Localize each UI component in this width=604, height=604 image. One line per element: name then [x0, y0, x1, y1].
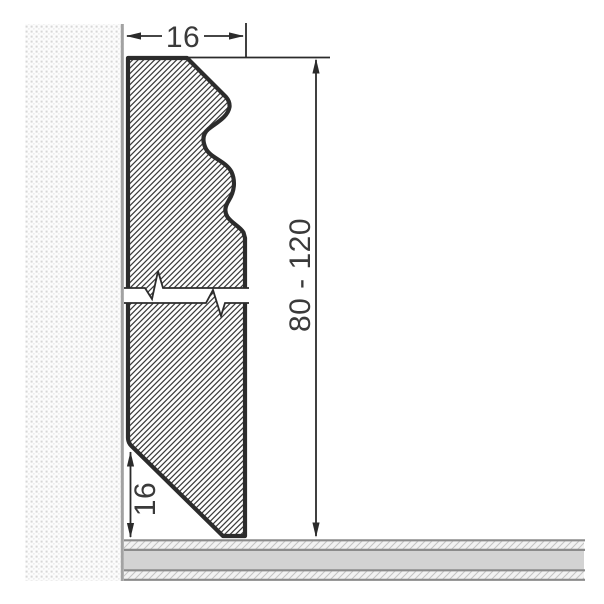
wall	[25, 24, 124, 581]
width-dim-arrow-left-icon	[126, 32, 141, 39]
height-dim-arrow-top-icon	[312, 59, 319, 74]
floor	[124, 540, 585, 580]
skirting-upper-section	[128, 58, 245, 299]
width-dimension-label: 16	[166, 21, 200, 54]
height-dim-arrow-bottom-icon	[312, 523, 319, 538]
width-dim-arrow-right-icon	[229, 32, 244, 39]
floor-bottom-screed	[124, 571, 584, 580]
drawing-canvas: 16 80 - 120 16	[0, 0, 604, 604]
floor-core	[124, 551, 584, 570]
wall-surface	[25, 24, 124, 581]
width-dimension: 16	[126, 20, 246, 58]
height-dimension-label: 80 - 120	[284, 218, 317, 332]
floor-top-screed	[124, 541, 584, 550]
bevel-dim-arrow-top-icon	[127, 452, 134, 467]
wall-edge-line	[121, 24, 124, 581]
bevel-dim-arrow-bottom-icon	[127, 523, 134, 538]
skirting-cross-section-drawing: 16 80 - 120 16	[0, 0, 604, 604]
skirting-profile	[124, 58, 249, 536]
bevel-dimension-label: 16	[129, 482, 162, 516]
